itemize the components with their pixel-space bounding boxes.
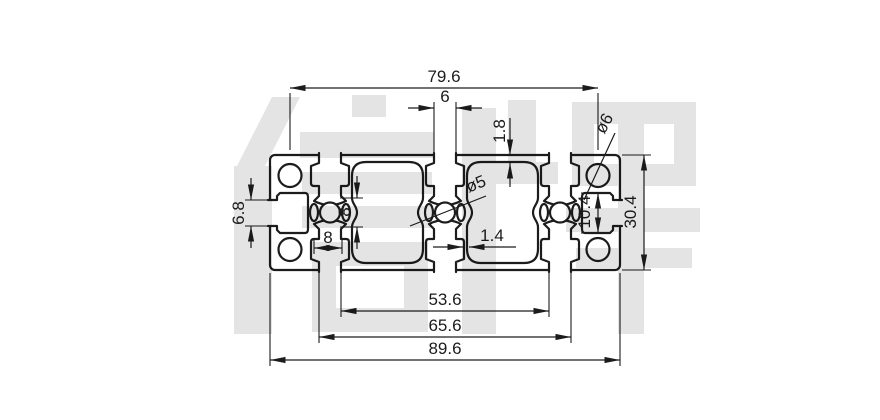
drawing-canvas: 79.6 6 1.8 ø6 6.8 (0, 0, 880, 420)
watermark-stroke (302, 172, 432, 194)
watermark-stroke (508, 100, 536, 170)
dim-label: 53.6 (428, 290, 461, 309)
watermark-stroke (234, 166, 272, 334)
corner-hole-top-left (279, 164, 302, 187)
watermark-stroke (462, 108, 496, 334)
dim-label: 6 (440, 87, 449, 106)
watermark-stroke (300, 132, 434, 158)
watermark-stroke-hole (336, 266, 404, 308)
dim-label: 79.6 (427, 67, 460, 86)
technical-drawing: 79.6 6 1.8 ø6 6.8 (0, 0, 880, 420)
dim-label: 65.6 (428, 316, 461, 335)
watermark-stroke (496, 162, 558, 184)
watermark-stroke (302, 206, 432, 228)
pocket (540, 204, 548, 221)
dim-label: 89.6 (428, 339, 461, 358)
watermark-stroke (352, 95, 386, 117)
watermark-stroke (618, 102, 644, 334)
corner-hole-bottom-left (279, 238, 302, 261)
watermark (234, 95, 700, 334)
